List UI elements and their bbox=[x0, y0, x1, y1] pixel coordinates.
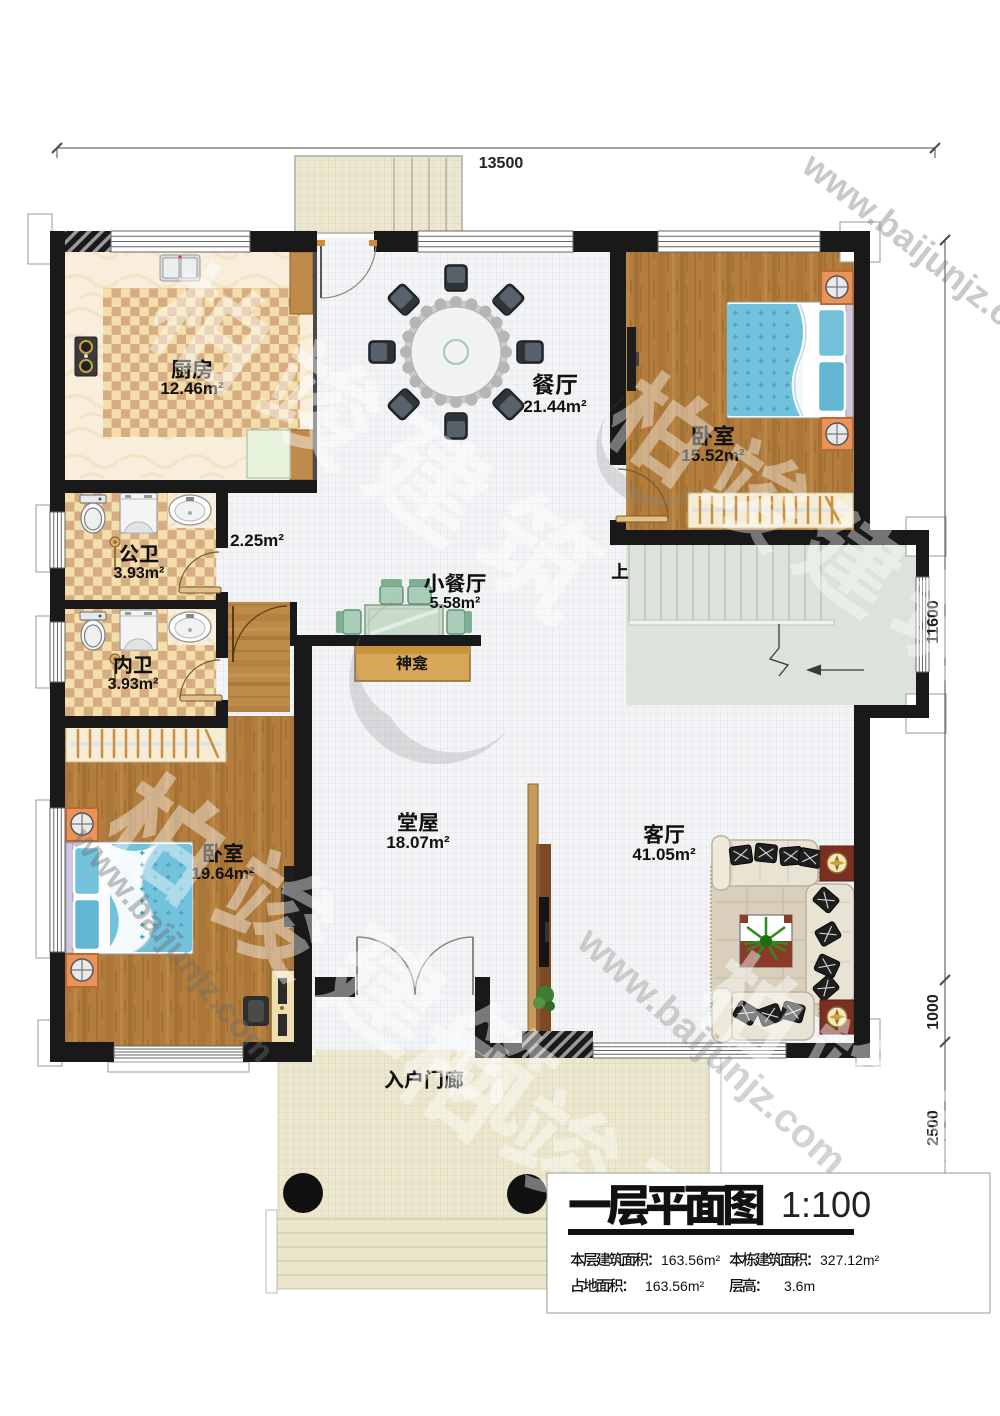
svg-text:3.93m²: 3.93m² bbox=[114, 565, 165, 582]
svg-text:21.44m²: 21.44m² bbox=[523, 397, 587, 416]
svg-text:13500: 13500 bbox=[479, 155, 524, 172]
svg-text:163.56m²: 163.56m² bbox=[661, 1252, 720, 1268]
svg-text:18.07m²: 18.07m² bbox=[386, 833, 450, 852]
svg-text:327.12m²: 327.12m² bbox=[820, 1252, 879, 1268]
svg-text:163.56m²: 163.56m² bbox=[645, 1278, 704, 1294]
svg-text:1000: 1000 bbox=[925, 994, 942, 1030]
svg-text:3.93m²: 3.93m² bbox=[108, 676, 159, 693]
svg-text:41.05m²: 41.05m² bbox=[632, 845, 696, 864]
svg-text:5.58m²: 5.58m² bbox=[430, 595, 481, 612]
svg-text:1:100: 1:100 bbox=[781, 1184, 871, 1225]
svg-text:3.6m: 3.6m bbox=[784, 1278, 815, 1294]
svg-text:2.25m²: 2.25m² bbox=[230, 531, 284, 550]
